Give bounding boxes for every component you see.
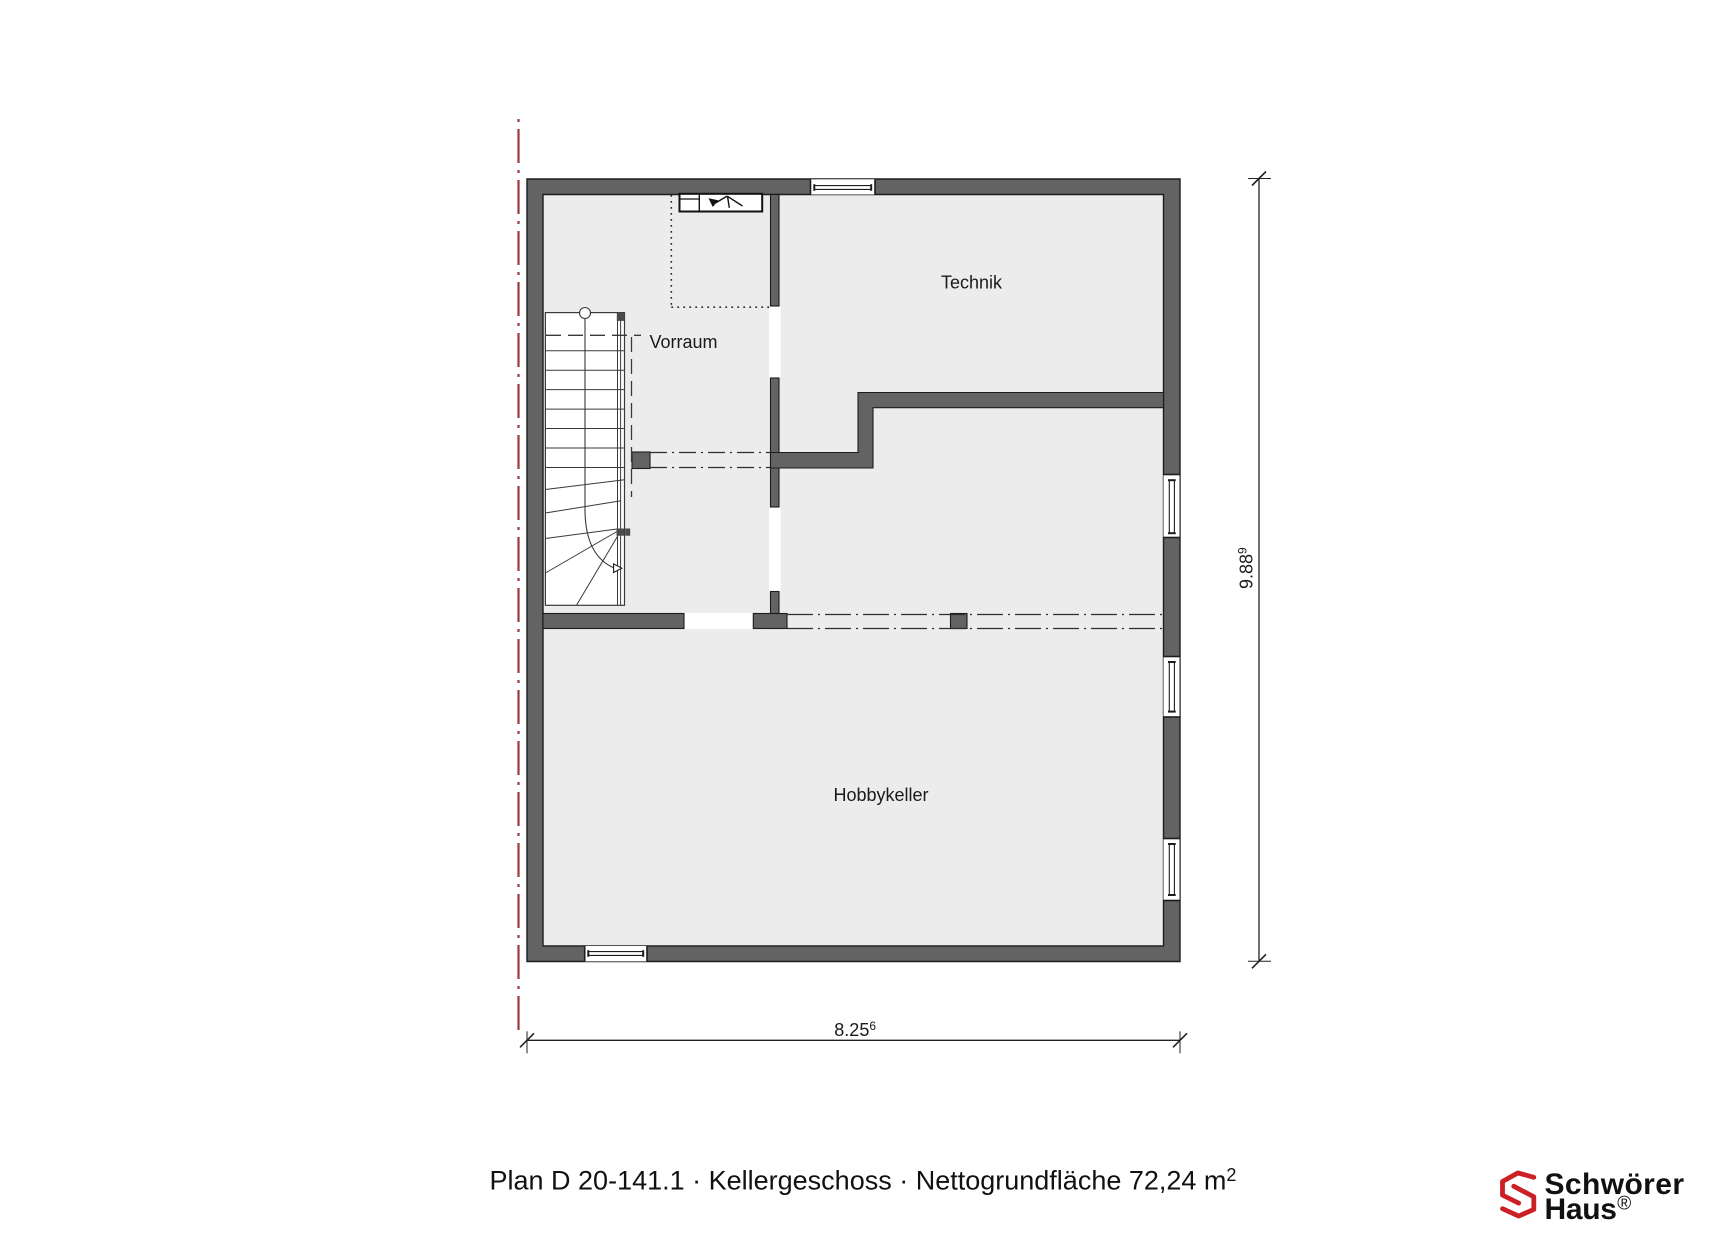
svg-text:Vorraum: Vorraum bbox=[650, 332, 718, 352]
svg-text:Technik: Technik bbox=[941, 273, 1003, 293]
svg-text:®: ® bbox=[1617, 1194, 1631, 1215]
svg-text:Haus: Haus bbox=[1545, 1193, 1617, 1226]
svg-text:Plan D 20-141.1 · Kellergescho: Plan D 20-141.1 · Kellergeschoss · Netto… bbox=[490, 1165, 1237, 1196]
svg-text:Hobbykeller: Hobbykeller bbox=[834, 785, 929, 805]
